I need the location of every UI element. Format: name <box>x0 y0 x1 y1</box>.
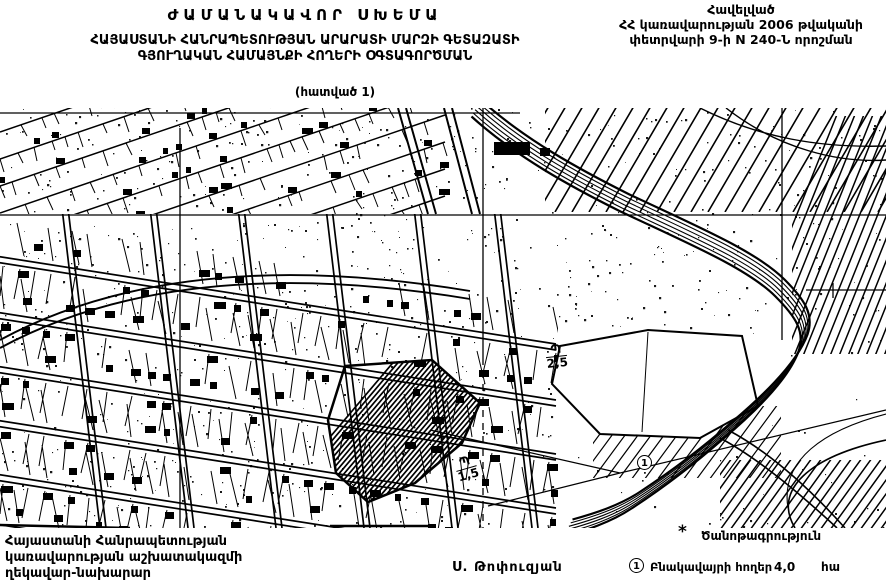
fragment-note: (հատված 1) <box>250 85 420 99</box>
signatory-org-block: Հայաստանի Հանրապետության կառավարության ա… <box>5 534 242 582</box>
map-marker-circled-1: 1 <box>637 455 652 470</box>
legend-item1-unit: հա <box>821 560 840 574</box>
approval-block: Հավելված ՀՀ կառավարության 2006 թվականի փ… <box>600 2 882 47</box>
legend-note-label: Ծանոթագրություն <box>701 529 821 543</box>
legend-item1-circled-1: 1 <box>629 558 644 573</box>
parcel-label-1: Պ 2,5 <box>545 343 569 370</box>
page-subtitle-line1: ՀԱՅԱՍՏԱՆԻ ՀԱՆՐԱՊԵՏՈՒԹՅԱՆ ԱՐԱՐԱՏԻ ՄԱՐԶԻ Գ… <box>10 33 600 49</box>
signatory-org-line3: ղեկավար-նախարար <box>5 566 242 582</box>
asterisk-icon: * <box>678 522 687 542</box>
document-header: ԺԱՄԱՆԱԿԱՎՈՐ ՍԽԵՄԱ ՀԱՅԱՍՏԱՆԻ ՀԱՆՐԱՊԵՏՈՒԹՅ… <box>10 6 600 65</box>
map-area: Պ 2,5 Պ 1,5 1 <box>0 108 886 528</box>
signature-name: Ս. Թոփուզյան <box>452 560 563 575</box>
cadastral-map-scan <box>0 108 886 528</box>
page-subtitle-line2: ԳՅՈՒՂԱԿԱՆ ՀԱՄԱՅՆՔԻ ՀՈՂԵՐԻ ՕԳՏԱԳՈՐԾՄԱՆ <box>10 49 600 65</box>
parcel-label-1-den: 2,5 <box>546 356 568 370</box>
approval-line3: փետրվարի 9-ի N 240-Ն որոշման <box>600 32 882 47</box>
signatory-org-line2: կառավարության աշխատակազմի <box>5 550 242 566</box>
signatory-org-line1: Հայաստանի Հանրապետության <box>5 534 242 550</box>
scanned-scheme-document: ԺԱՄԱՆԱԿԱՎՈՐ ՍԽԵՄԱ ՀԱՅԱՍՏԱՆԻ ՀԱՆՐԱՊԵՏՈՒԹՅ… <box>0 0 886 584</box>
page-title: ԺԱՄԱՆԱԿԱՎՈՐ ՍԽԵՄԱ <box>10 6 600 24</box>
legend-item1-label: Բնակավայրի հողեր <box>650 560 772 574</box>
approval-line2: ՀՀ կառավարության 2006 թվականի <box>600 17 882 32</box>
legend-item1-value: 4,0 <box>774 560 795 574</box>
approval-line1: Հավելված <box>600 2 882 17</box>
